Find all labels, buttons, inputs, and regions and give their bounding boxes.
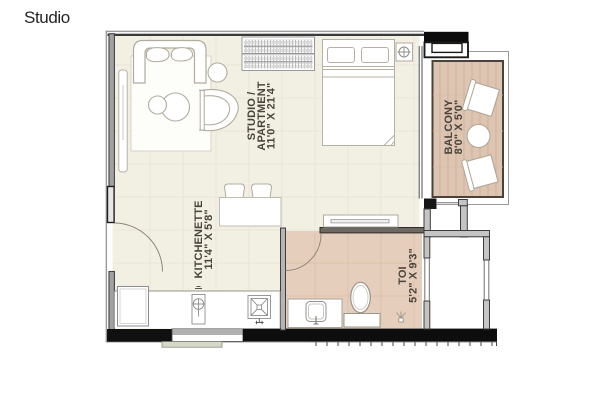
svg-text:11'4" X 5'8": 11'4" X 5'8" [203, 209, 215, 269]
svg-text:11'0" X 21'4": 11'0" X 21'4" [266, 83, 278, 150]
svg-text:5'2" X 9'3": 5'2" X 9'3" [408, 248, 420, 303]
svg-text:Studio: Studio [24, 8, 70, 27]
svg-text:8'0" X 5'0": 8'0" X 5'0" [453, 100, 465, 155]
